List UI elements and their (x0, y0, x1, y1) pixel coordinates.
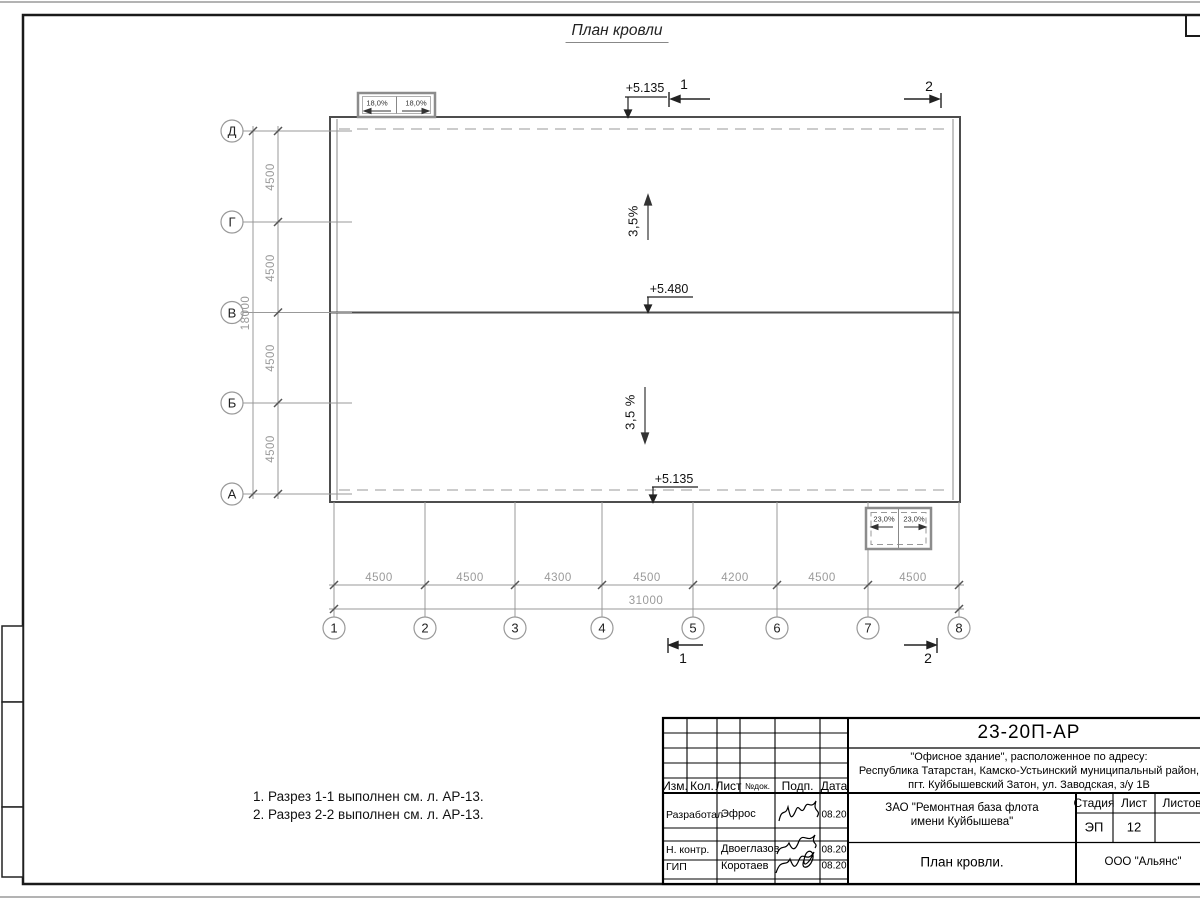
note-line-2: 2. Разрез 2-2 выполнен см. л. АР-13. (253, 807, 484, 822)
canopy-bot-right-label: 23,0% (903, 515, 924, 524)
axis-number-7: 7 (864, 621, 871, 636)
dim-bottom-5: 4200 (721, 572, 749, 584)
company-name: ООО "Альянс" (1105, 856, 1182, 868)
axis-number-4: 4 (598, 621, 605, 636)
doc-number: 23-20П-АР (978, 722, 1081, 744)
sheet-header: Лист (1121, 796, 1147, 810)
axis-number-2: 2 (421, 621, 428, 636)
note-line-1: 1. Разрез 1-1 выполнен см. л. АР-13. (253, 789, 484, 804)
date-gip: 08.20 (821, 861, 846, 872)
role-ncontrol: Н. контр. (666, 844, 709, 856)
address-line-2: Республика Татарстан, Камско-Устьинский … (859, 765, 1199, 777)
axis-circles (221, 120, 970, 639)
canopy-bot-left-label: 23,0% (873, 515, 894, 524)
client-line-1: ЗАО "Ремонтная база флота (885, 802, 1038, 814)
dim-left-4: 4500 (265, 435, 277, 463)
sheets-header: Листов (1163, 796, 1200, 810)
section-1-bottom-label: 1 (679, 650, 687, 666)
slope-up-label: 3,5% (626, 205, 641, 237)
elevation-top-label: +5.135 (626, 81, 665, 95)
section-cut-marks (668, 92, 941, 653)
dim-bottom-total: 31000 (629, 595, 663, 607)
rev-header-izm: Изм. (662, 779, 688, 793)
date-developer: 08.20 (821, 810, 846, 821)
axis-number-5: 5 (689, 621, 696, 636)
section-2-top-label: 2 (925, 78, 933, 94)
dim-left-2: 4500 (265, 254, 277, 282)
address-line-3: пгт. Куйбышевский Затон, ул. Заводская, … (908, 779, 1150, 791)
dimension-lines (253, 126, 964, 609)
section-2-bottom-label: 2 (924, 650, 932, 666)
name-developer: Эфрос (721, 808, 756, 820)
elevation-ridge-label: +5.480 (650, 282, 689, 296)
role-developer: Разработал (666, 809, 723, 821)
rev-header-podp: Подп. (782, 779, 814, 793)
dim-left-1: 4500 (265, 163, 277, 191)
axis-letter-a: А (228, 487, 237, 502)
section-1-top-label: 1 (680, 76, 688, 92)
dim-bottom-4: 4500 (633, 572, 661, 584)
slope-down-label: 3,5 % (623, 394, 638, 430)
dim-left-total: 18000 (240, 295, 252, 329)
sheet-doc-title: План кровли. (920, 855, 1003, 870)
name-gip: Коротаев (721, 860, 769, 872)
axis-number-6: 6 (773, 621, 780, 636)
corner-stamp-box (1186, 15, 1200, 36)
rev-header-kol: Кол. (690, 779, 714, 793)
canopy-top-right-label: 18,0% (405, 99, 426, 108)
rev-header-data: Дата (821, 779, 848, 793)
axis-number-8: 8 (955, 621, 962, 636)
date-ncontrol: 08.20 (821, 845, 846, 856)
slope-arrows (642, 195, 652, 443)
drawing-title-text: План кровли (566, 22, 669, 43)
dim-left-3: 4500 (265, 344, 277, 372)
dim-bottom-2: 4500 (456, 572, 484, 584)
sheet-number: 12 (1127, 820, 1141, 835)
axis-letter-b: Б (228, 396, 237, 411)
role-gip: ГИП (666, 861, 687, 873)
elevation-leaders (625, 97, 699, 503)
axis-number-1: 1 (330, 621, 337, 636)
rev-header-list: Лист (715, 779, 741, 793)
stage-header: Стадия (1074, 796, 1115, 810)
dimension-ticks (249, 127, 963, 613)
name-ncontrol: Двоеглазов (721, 843, 779, 855)
canopy-top-left-label: 18,0% (366, 99, 387, 108)
dim-bottom-6: 4500 (808, 572, 836, 584)
rev-header-ndok: №док. (745, 781, 770, 791)
client-line-2: имени Куйбышева" (911, 816, 1014, 828)
axis-letter-d: Д (228, 124, 237, 139)
grid-axis-lines (243, 131, 959, 617)
stage-value: ЭП (1085, 820, 1104, 835)
left-stamp-cells (2, 626, 23, 877)
address-line-1: "Офисное здание", расположенное по адрес… (910, 751, 1147, 763)
axis-number-3: 3 (511, 621, 518, 636)
axis-letter-g: Г (228, 215, 235, 230)
axis-letter-v: В (228, 305, 237, 320)
drawing-sheet: План кровли Д Г В Б А 1 2 3 4 5 6 7 8 45… (0, 0, 1200, 900)
dim-bottom-3: 4300 (544, 572, 572, 584)
dim-bottom-7: 4500 (899, 572, 927, 584)
elevation-bottom-label: +5.135 (655, 472, 694, 486)
drawing-title: План кровли (566, 22, 669, 40)
dim-bottom-1: 4500 (365, 572, 393, 584)
